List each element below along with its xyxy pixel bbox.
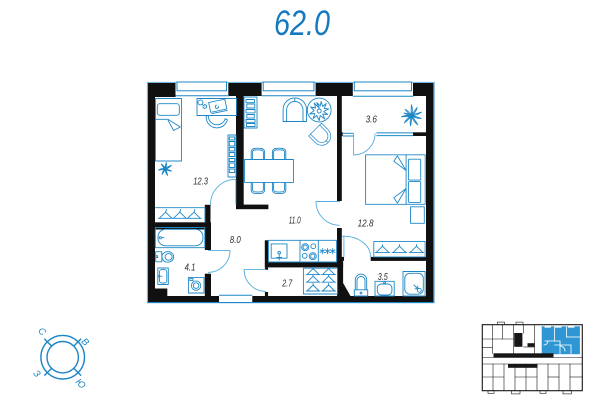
svg-text:С: С <box>35 326 48 339</box>
svg-text:3.5: 3.5 <box>378 272 388 283</box>
svg-text:62.0: 62.0 <box>274 4 330 43</box>
svg-text:2.7: 2.7 <box>282 279 294 290</box>
svg-text:12.3: 12.3 <box>193 176 208 187</box>
svg-text:Ю: Ю <box>73 377 88 392</box>
svg-text:В: В <box>79 336 92 349</box>
svg-text:8.0: 8.0 <box>230 235 241 246</box>
svg-text:11.0: 11.0 <box>289 215 301 226</box>
svg-text:3.6: 3.6 <box>366 114 378 125</box>
svg-text:4.1: 4.1 <box>185 263 196 274</box>
svg-text:12.8: 12.8 <box>358 218 374 229</box>
svg-text:З: З <box>30 368 42 380</box>
